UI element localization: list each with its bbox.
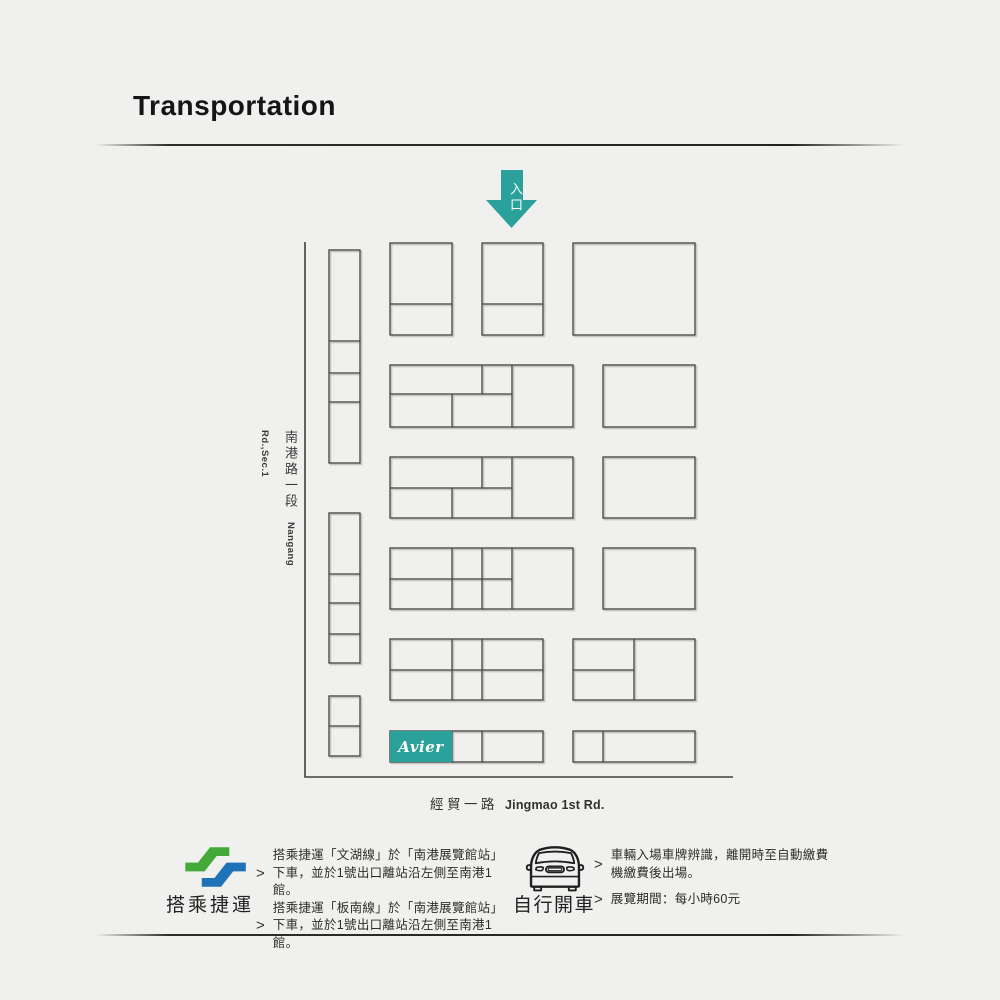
car-icon [525,843,585,892]
chevron-right-icon: > [594,892,603,907]
mrt-bullet-2-text: 搭乘捷運「板南線」於「南港展覽館站」下車，並於1號出口離站沿左側至南港1館。 [273,900,514,953]
mrt-bullet-2: > 搭乘捷運「板南線」於「南港展覽館站」下車，並於1號出口離站沿左側至南港1館。 [256,900,514,953]
car-bullet-2: > 展覽期間：每小時60元 [594,891,830,909]
mrt-bullet-list: > 搭乘捷運「文湖線」於「南港展覽館站」下車，並於1號出口離站沿左側至南港1館。… [256,847,514,952]
mrt-section-label: 搭乘捷運 [166,890,254,917]
metro-logo-icon [177,845,253,889]
left-road-label-zh: 南港路一段 [283,430,298,510]
chevron-right-icon: > [594,857,603,872]
left-road-label: 南港路一段 Nangang Rd.,Sec.1 [251,430,303,615]
car-section-label: 自行開車 [513,890,595,917]
chevron-right-icon: > [256,866,265,881]
car-bullet-1: > 車輛入場車牌辨識，離開時至自動繳費機繳費後出場。 [594,847,830,882]
car-bullet-2-text: 展覽期間：每小時60元 [611,891,830,909]
bottom-road-label-en: Jingmao 1st Rd. [505,798,605,812]
mrt-bullet-1: > 搭乘捷運「文湖線」於「南港展覽館站」下車，並於1號出口離站沿左側至南港1館。 [256,847,514,900]
bottom-divider [95,934,905,936]
road-lines [305,242,733,777]
booth-blocks [329,243,695,762]
mrt-bullet-1-text: 搭乘捷運「文湖線」於「南港展覽館站」下車，並於1號出口離站沿左側至南港1館。 [273,847,514,900]
bottom-road-label: 經貿一路 Jingmao 1st Rd. [430,793,605,813]
avier-logo: Avier [390,731,452,762]
entrance-label: 入口 [499,175,525,221]
bottom-road-label-zh: 經貿一路 [430,793,498,813]
car-bullet-1-text: 車輛入場車牌辨識，離開時至自動繳費機繳費後出場。 [611,847,830,882]
chevron-right-icon: > [256,918,265,933]
car-bullet-list: > 車輛入場車牌辨識，離開時至自動繳費機繳費後出場。 > 展覽期間：每小時60元 [594,847,830,909]
